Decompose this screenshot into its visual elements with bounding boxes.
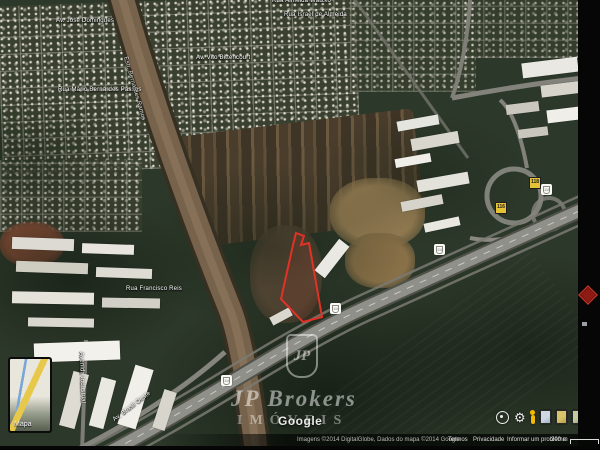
satellite-map-canvas[interactable]: Rua Almeida Watzko Rua Israel de Almeida… — [0, 0, 600, 450]
map-type-toggle[interactable]: Mapa — [8, 357, 52, 433]
letterbox-bottom — [0, 446, 600, 450]
street-label: Av. Vito Bittencourt — [196, 55, 250, 62]
terms-link[interactable]: Termos — [448, 437, 468, 444]
building — [12, 291, 94, 304]
explore-icon[interactable] — [496, 411, 509, 424]
federal-route-shield: 116 — [221, 375, 232, 386]
scale-bar — [570, 439, 599, 444]
street-label: Av. José Domingues — [56, 18, 114, 25]
federal-route-shield: 116 — [434, 244, 445, 255]
state-route-shield: 118 — [529, 177, 541, 189]
imagery-thumbnail[interactable] — [556, 410, 567, 424]
federal-route-shield: 116 — [541, 184, 552, 195]
letterbox-right — [578, 0, 600, 450]
building — [102, 297, 160, 308]
state-route-shield: 116 — [495, 202, 507, 214]
service-road — [452, 0, 470, 98]
google-logo: Google — [278, 414, 322, 428]
privacy-link[interactable]: Privacidade — [473, 437, 504, 444]
building — [96, 267, 152, 279]
building — [28, 317, 94, 327]
street-label: Rua Almeida Watzko — [272, 0, 331, 5]
pegman-icon[interactable] — [531, 415, 535, 424]
street-label: Rua Francisco Reis — [126, 286, 182, 293]
imagery-copyright: Imagens ©2014 DigitalGlobe, Dados do map… — [297, 437, 460, 444]
street-label: Rua Israel de Almeida — [284, 12, 347, 19]
gray-dot — [582, 322, 587, 326]
gear-icon[interactable] — [514, 411, 526, 424]
imagery-thumbnail[interactable] — [540, 410, 551, 424]
building — [82, 243, 134, 255]
map-type-label: Mapa — [14, 421, 32, 428]
roads-layer — [0, 0, 600, 450]
jp-brokers-emblem: JP — [286, 334, 318, 378]
jp-brokers-watermark: JP Brokers — [231, 386, 357, 412]
building — [12, 237, 74, 251]
federal-route-shield: 116 — [330, 303, 341, 314]
scale-label: 200 m — [551, 437, 568, 444]
